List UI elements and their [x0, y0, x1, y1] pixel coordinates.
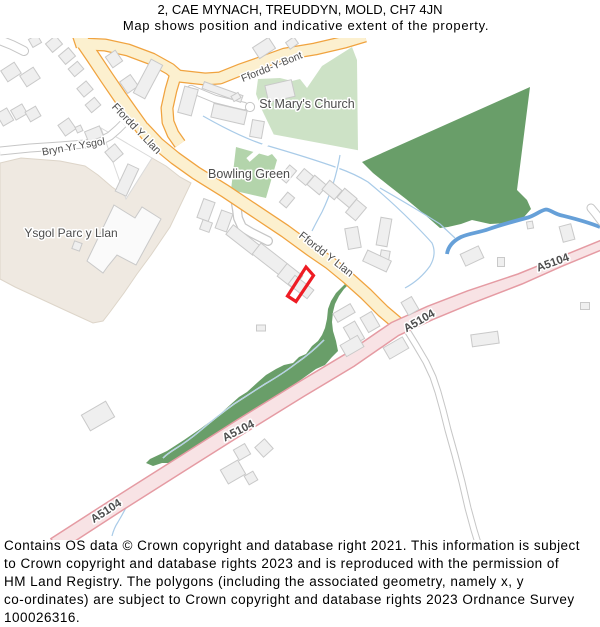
svg-text:Bowling Green: Bowling Green — [208, 167, 290, 181]
svg-text:Ysgol Parc y Llan: Ysgol Parc y Llan — [24, 226, 117, 240]
svg-text:St Mary's Church: St Mary's Church — [259, 97, 355, 111]
